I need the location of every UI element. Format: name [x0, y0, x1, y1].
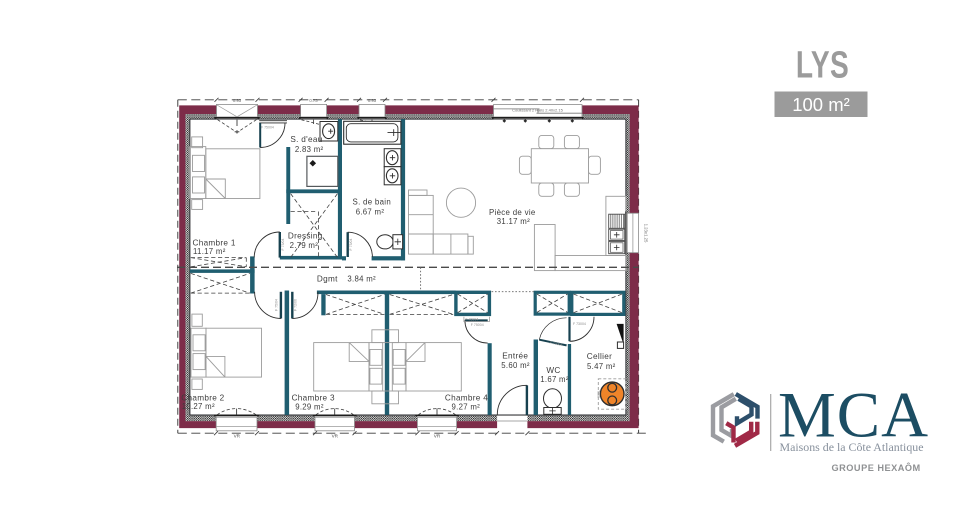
svg-text:LYS: LYS: [796, 45, 849, 87]
svg-text:1.67 m²: 1.67 m²: [540, 375, 569, 384]
svg-text:1.23x1.25: 1.23x1.25: [644, 224, 649, 243]
svg-text:9.29 m²: 9.29 m²: [295, 403, 324, 412]
svg-text:31.17 m²: 31.17 m²: [497, 217, 530, 226]
svg-text:11.17 m²: 11.17 m²: [193, 247, 226, 256]
svg-text:Coulissant 2 Rails 2.40x2.15: Coulissant 2 Rails 2.40x2.15: [512, 108, 563, 113]
svg-text:Chambre 4: Chambre 4: [445, 393, 488, 402]
svg-text:GROUPE HEXAÔM: GROUPE HEXAÔM: [832, 462, 921, 473]
svg-text:F 75/04: F 75/04: [281, 239, 285, 251]
svg-text:2.83 m²: 2.83 m²: [295, 145, 324, 154]
svg-text:S. de bain: S. de bain: [353, 197, 392, 206]
svg-text:Entrée: Entrée: [502, 352, 528, 361]
svg-text:F 73004: F 73004: [466, 318, 479, 322]
svg-text:2.79 m²: 2.79 m²: [290, 241, 319, 250]
svg-text:300L: 300L: [597, 390, 601, 398]
svg-text:Cellier: Cellier: [587, 352, 612, 361]
svg-text:Pièce de vie: Pièce de vie: [489, 208, 536, 217]
svg-text:F 75/04: F 75/04: [349, 239, 353, 251]
svg-text:VR: VR: [234, 434, 241, 439]
svg-text:F 75/04: F 75/04: [275, 299, 279, 311]
svg-text:0.93: 0.93: [368, 98, 377, 103]
svg-text:3.84 m²: 3.84 m²: [347, 275, 376, 284]
svg-text:6.67 m²: 6.67 m²: [356, 208, 385, 217]
svg-text:WC: WC: [546, 366, 560, 375]
svg-text:VR: VR: [332, 434, 339, 439]
svg-text:0.73: 0.73: [309, 98, 318, 103]
svg-text:Chambre 3: Chambre 3: [292, 393, 335, 402]
svg-text:VR: VR: [434, 434, 441, 439]
svg-text:9.27 m²: 9.27 m²: [452, 403, 481, 412]
svg-text:F 75004: F 75004: [471, 323, 484, 327]
svg-text:0.93: 0.93: [233, 98, 242, 103]
svg-text:Dressing: Dressing: [288, 231, 323, 240]
svg-text:Dgmt: Dgmt: [317, 275, 338, 284]
svg-text:F 73004: F 73004: [573, 322, 586, 326]
svg-text:Chambre 2: Chambre 2: [181, 393, 224, 402]
svg-text:10.27 m²: 10.27 m²: [182, 402, 215, 411]
svg-text:5.47 m²: 5.47 m²: [587, 362, 616, 371]
svg-text:F 75004: F 75004: [261, 125, 274, 129]
svg-text:S. d'eau: S. d'eau: [290, 135, 322, 144]
svg-text:5.60 m²: 5.60 m²: [501, 361, 530, 370]
svg-text:F 72/06: F 72/06: [294, 299, 298, 311]
svg-text:Maisons de la Côte Atlantique: Maisons de la Côte Atlantique: [780, 440, 924, 454]
svg-text:100 m²: 100 m²: [792, 94, 850, 115]
